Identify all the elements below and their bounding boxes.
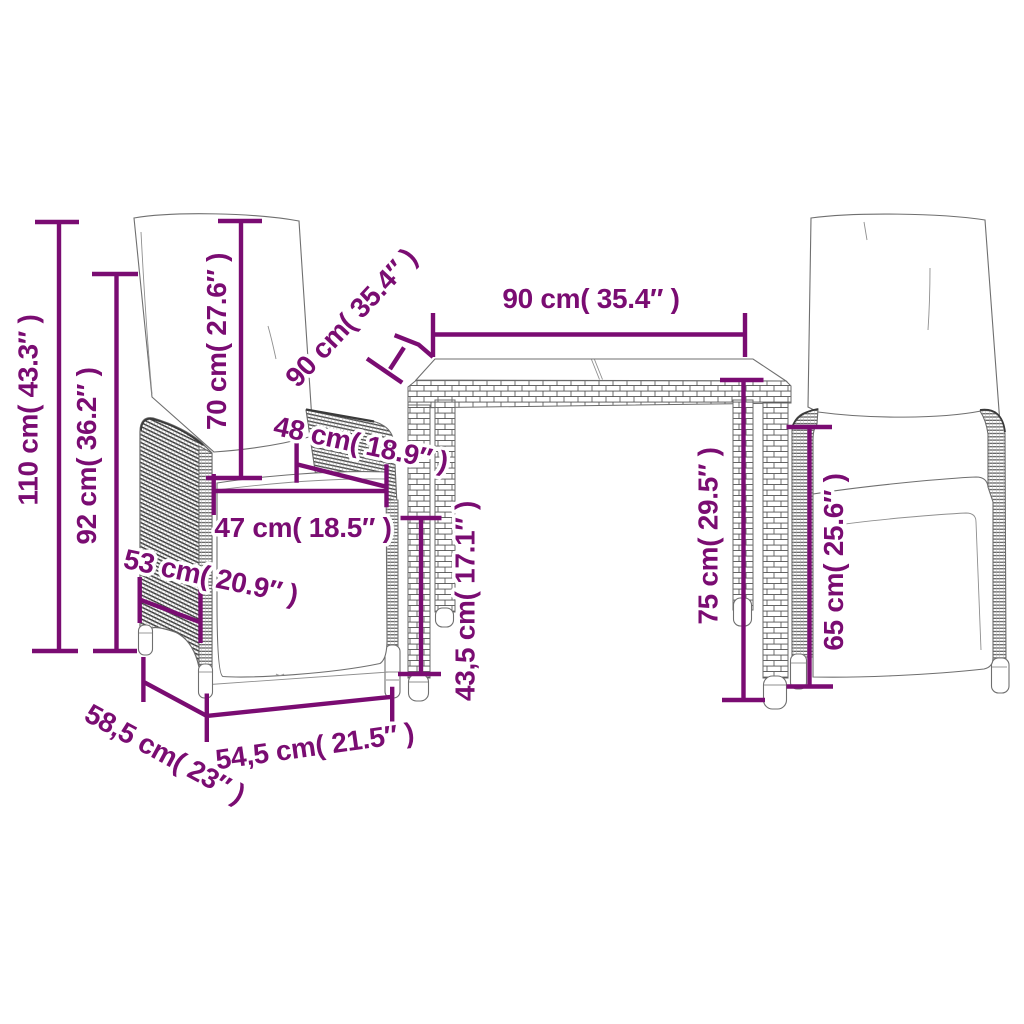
svg-text:70 cm( 27.6″ ): 70 cm( 27.6″ ) — [201, 253, 232, 430]
svg-text:110 cm( 43.3″ ): 110 cm( 43.3″ ) — [13, 314, 44, 505]
svg-text:47 cm( 18.5″ ): 47 cm( 18.5″ ) — [214, 512, 391, 543]
svg-text:75 cm( 29.5″ ): 75 cm( 29.5″ ) — [693, 447, 724, 624]
svg-text:92 cm( 36.2″ ): 92 cm( 36.2″ ) — [71, 367, 102, 544]
svg-text:65 cm( 25.6″ ): 65 cm( 25.6″ ) — [818, 473, 849, 650]
svg-text:90 cm( 35.4″ ): 90 cm( 35.4″ ) — [502, 283, 679, 314]
svg-text:43,5 cm( 17.1″ ): 43,5 cm( 17.1″ ) — [450, 501, 481, 701]
